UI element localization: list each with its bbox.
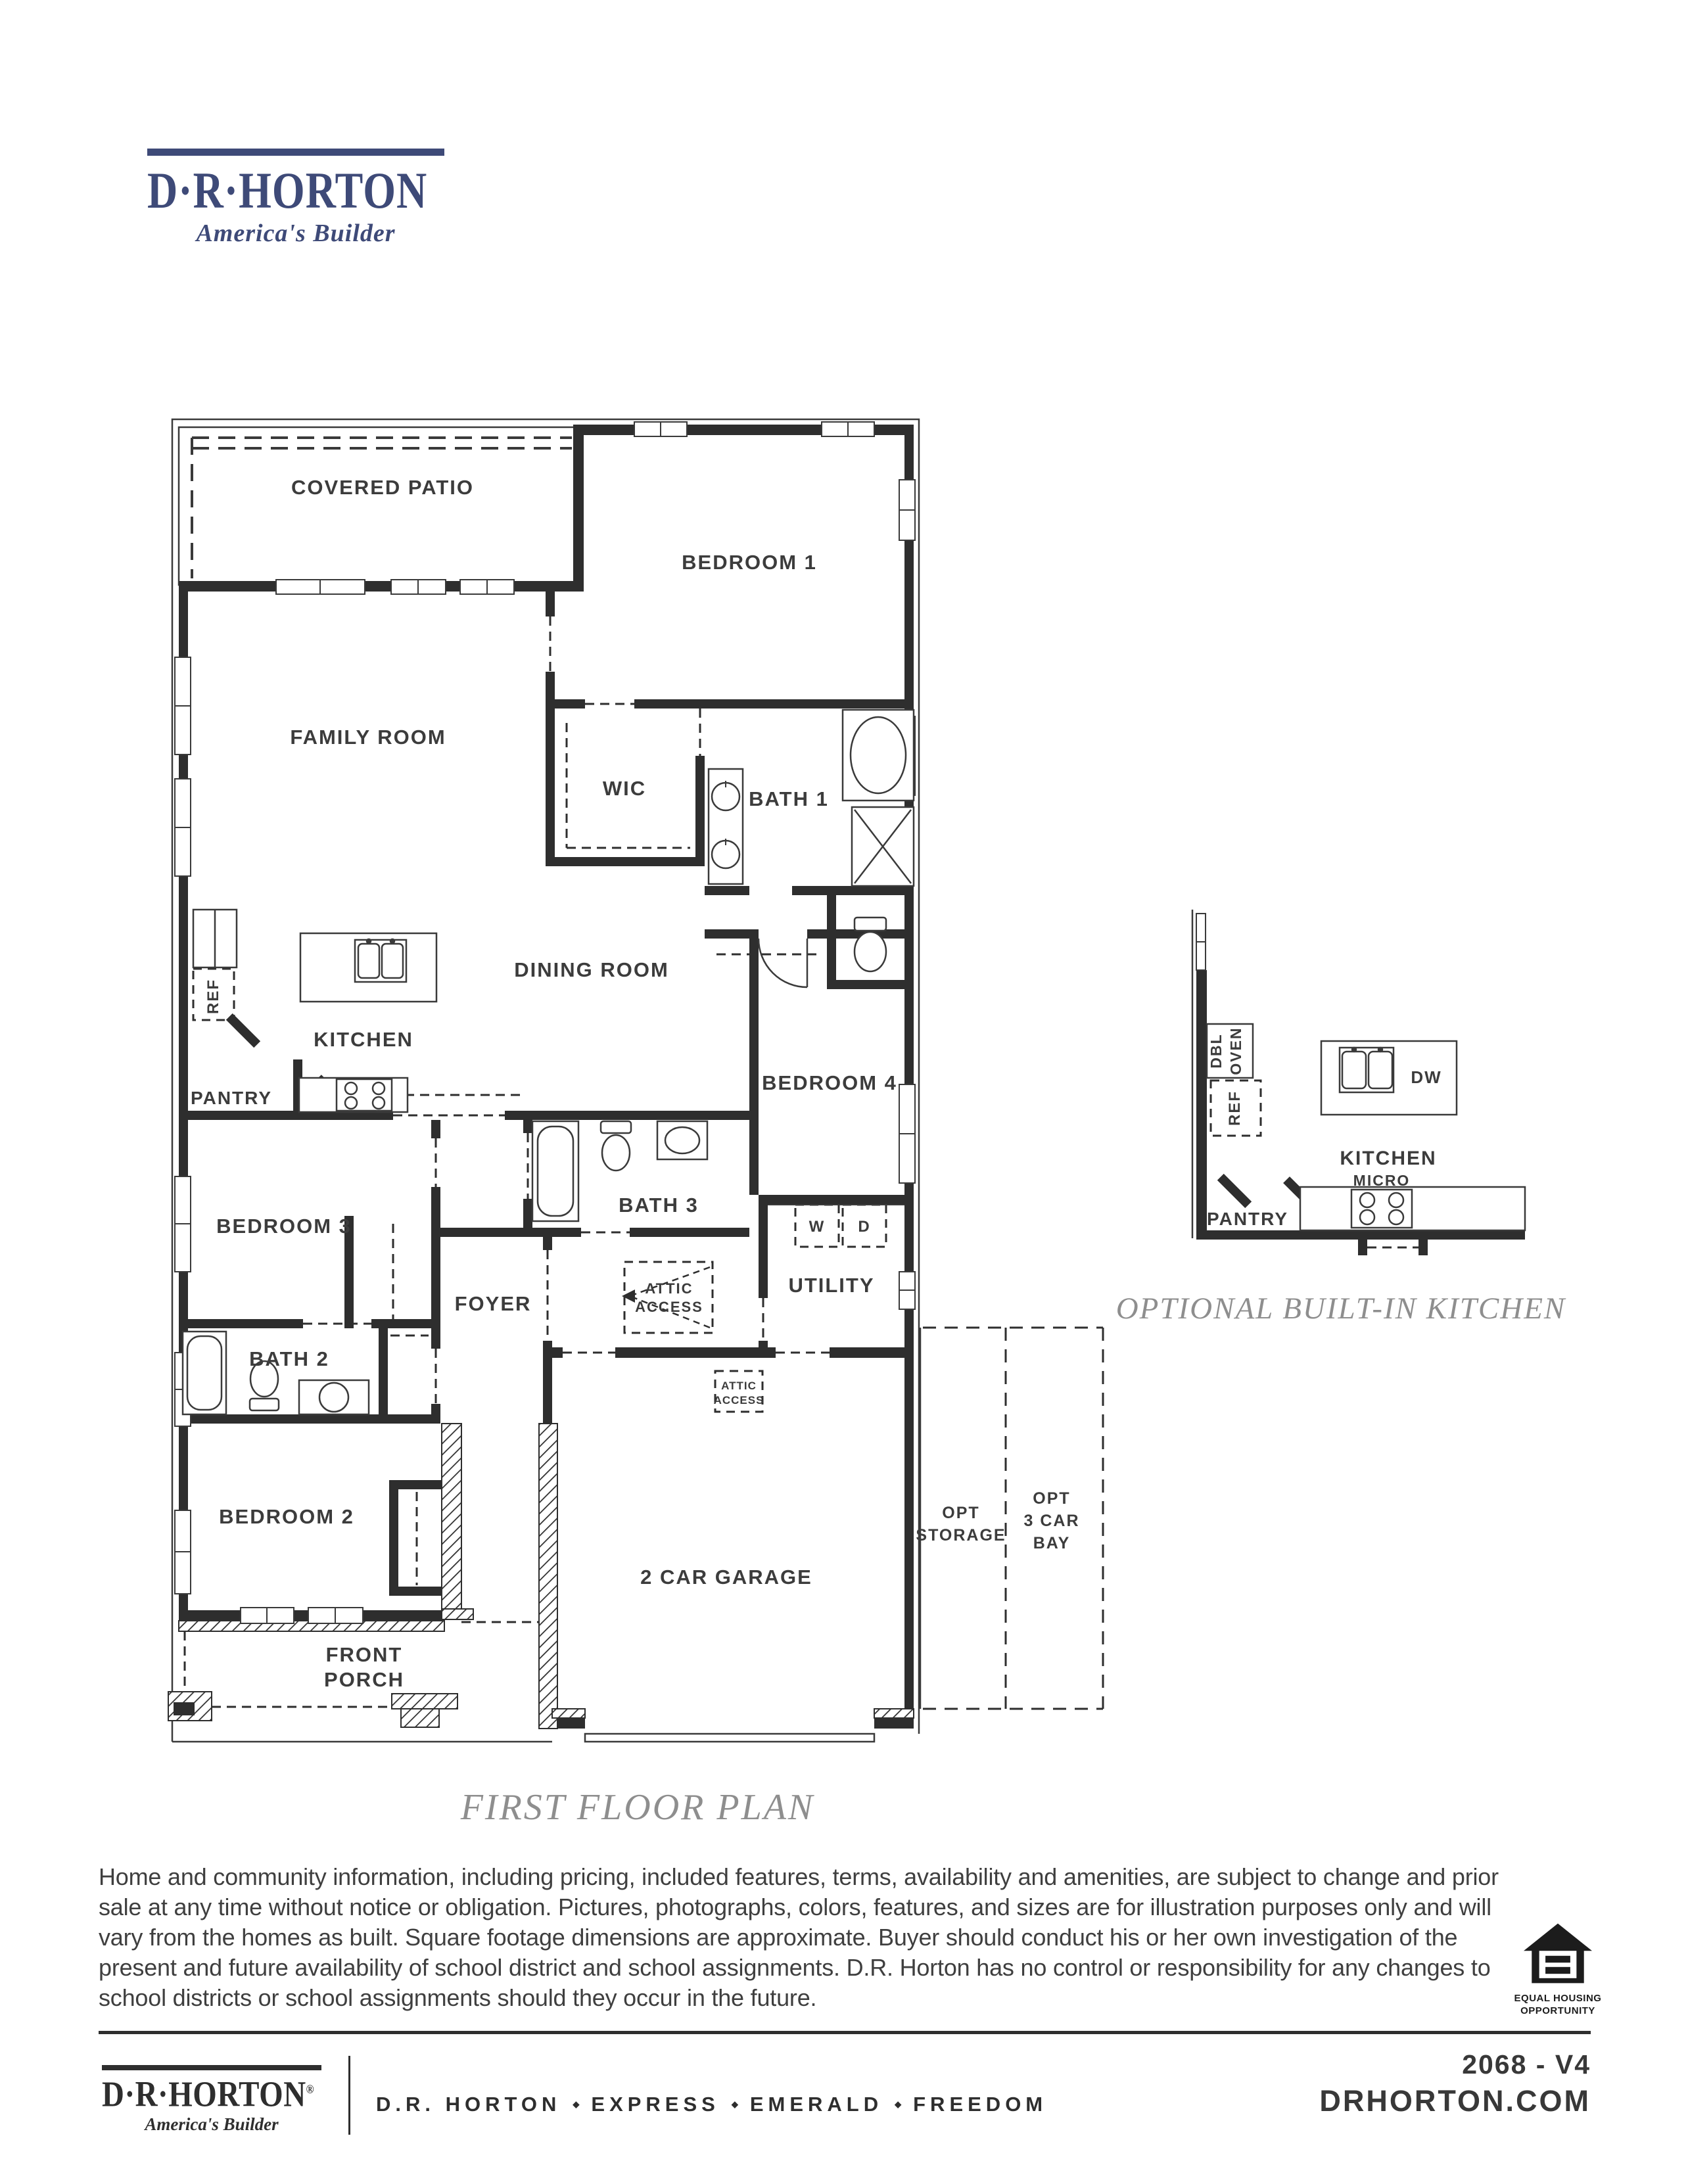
label-washer: W [809,1218,826,1236]
label-garage: 2 CAR GARAGE [640,1566,812,1589]
footer-right: 2068 - V4 DRHORTON.COM [1319,2049,1591,2118]
label-foyer: FOYER [455,1292,532,1315]
footer-logo-wordmark: D·R·HORTON® [102,2074,321,2116]
footer-brand-list: D.R. HORTON ◆ EXPRESS ◆ EMERALD ◆ FREEDO… [376,2085,1047,2124]
label-attic-access-2a: ATTIC [721,1380,757,1392]
attic-access-arrows [630,1267,710,1328]
label-wic: WIC [603,777,646,800]
equal-housing-line2: OPPORTUNITY [1507,2005,1609,2017]
label-bath2: BATH 2 [249,1347,329,1370]
legal-disclaimer: Home and community information, includin… [99,1862,1525,2013]
label-opt-ref: REF [1226,1090,1244,1126]
equal-housing-line1: EQUAL HOUSING [1507,1992,1609,2005]
caption-optional-kitchen: OPTIONAL BUILT-IN KITCHEN [1116,1291,1566,1326]
label-opt-bay-2: 3 CAR [1023,1512,1079,1530]
label-attic-access-2b: ACCESS [714,1394,764,1406]
label-kitchen: KITCHEN [314,1028,413,1051]
label-bath3: BATH 3 [619,1194,699,1217]
diamond-separator-icon: ◆ [895,2099,901,2110]
label-bedroom2: BEDROOM 2 [219,1505,354,1528]
footer-logo-tagline: America's Builder [102,2114,321,2135]
fixtures [183,710,1525,1742]
label-covered-patio: COVERED PATIO [291,476,474,499]
footer-rule [99,2031,1591,2034]
equal-housing-house-icon [1524,1922,1592,1985]
label-dining-room: DINING ROOM [514,958,669,981]
first-floor-plan-drawing: COVERED PATIO BEDROOM 1 FAMILY ROOM WIC … [0,0,1688,2184]
windows [175,422,1206,1623]
label-front-porch-2: PORCH [324,1668,404,1691]
label-opt-pantry: PANTRY [1207,1209,1288,1229]
label-opt-storage-1: OPT [942,1504,979,1522]
label-dryer: D [858,1218,870,1236]
label-opt-dw: DW [1411,1067,1442,1087]
footer-brand-drhorton: D.R. HORTON [376,2093,561,2116]
diamond-separator-icon: ◆ [732,2099,738,2110]
label-opt-dbl: DBL [1207,1033,1225,1068]
footer-brand-express: EXPRESS [591,2093,719,2116]
label-attic-access-1b: ACCESS [635,1299,703,1315]
label-opt-kitchen: KITCHEN [1340,1148,1436,1169]
label-opt-storage-2: STORAGE [916,1526,1006,1545]
label-ref: REF [204,979,222,1014]
label-bath1: BATH 1 [749,787,829,810]
label-front-porch-1: FRONT [326,1643,403,1666]
footer-logo-bar [102,2065,321,2070]
label-family-room: FAMILY ROOM [290,726,446,749]
footer-brand-emerald: EMERALD [750,2093,883,2116]
diamond-separator-icon: ◆ [573,2099,579,2110]
footer-divider [348,2056,350,2135]
label-opt-bay-3: BAY [1033,1534,1071,1552]
caption-first-floor-plan: FIRST FLOOR PLAN [460,1787,815,1828]
label-pantry: PANTRY [191,1088,272,1108]
label-utility: UTILITY [788,1274,874,1297]
label-opt-bay-1: OPT [1033,1489,1070,1508]
label-bedroom3: BEDROOM 3 [216,1215,352,1238]
footer-logo: D·R·HORTON® America's Builder [102,2065,321,2135]
covered-patio-outline [179,427,582,585]
label-opt-micro: MICRO [1353,1172,1411,1189]
plan-code: 2068 - V4 [1319,2049,1591,2080]
label-bedroom4: BEDROOM 4 [762,1071,897,1094]
registered-mark: ® [306,2083,314,2097]
footer-brand-freedom: FREEDOM [913,2093,1047,2116]
label-opt-oven: OVEN [1227,1027,1244,1075]
website-url: DRHORTON.COM [1319,2084,1591,2118]
label-bedroom1: BEDROOM 1 [682,551,817,574]
label-attic-access-1a: ATTIC [645,1280,693,1297]
equal-housing-logo: EQUAL HOUSING OPPORTUNITY [1507,1922,1609,2017]
